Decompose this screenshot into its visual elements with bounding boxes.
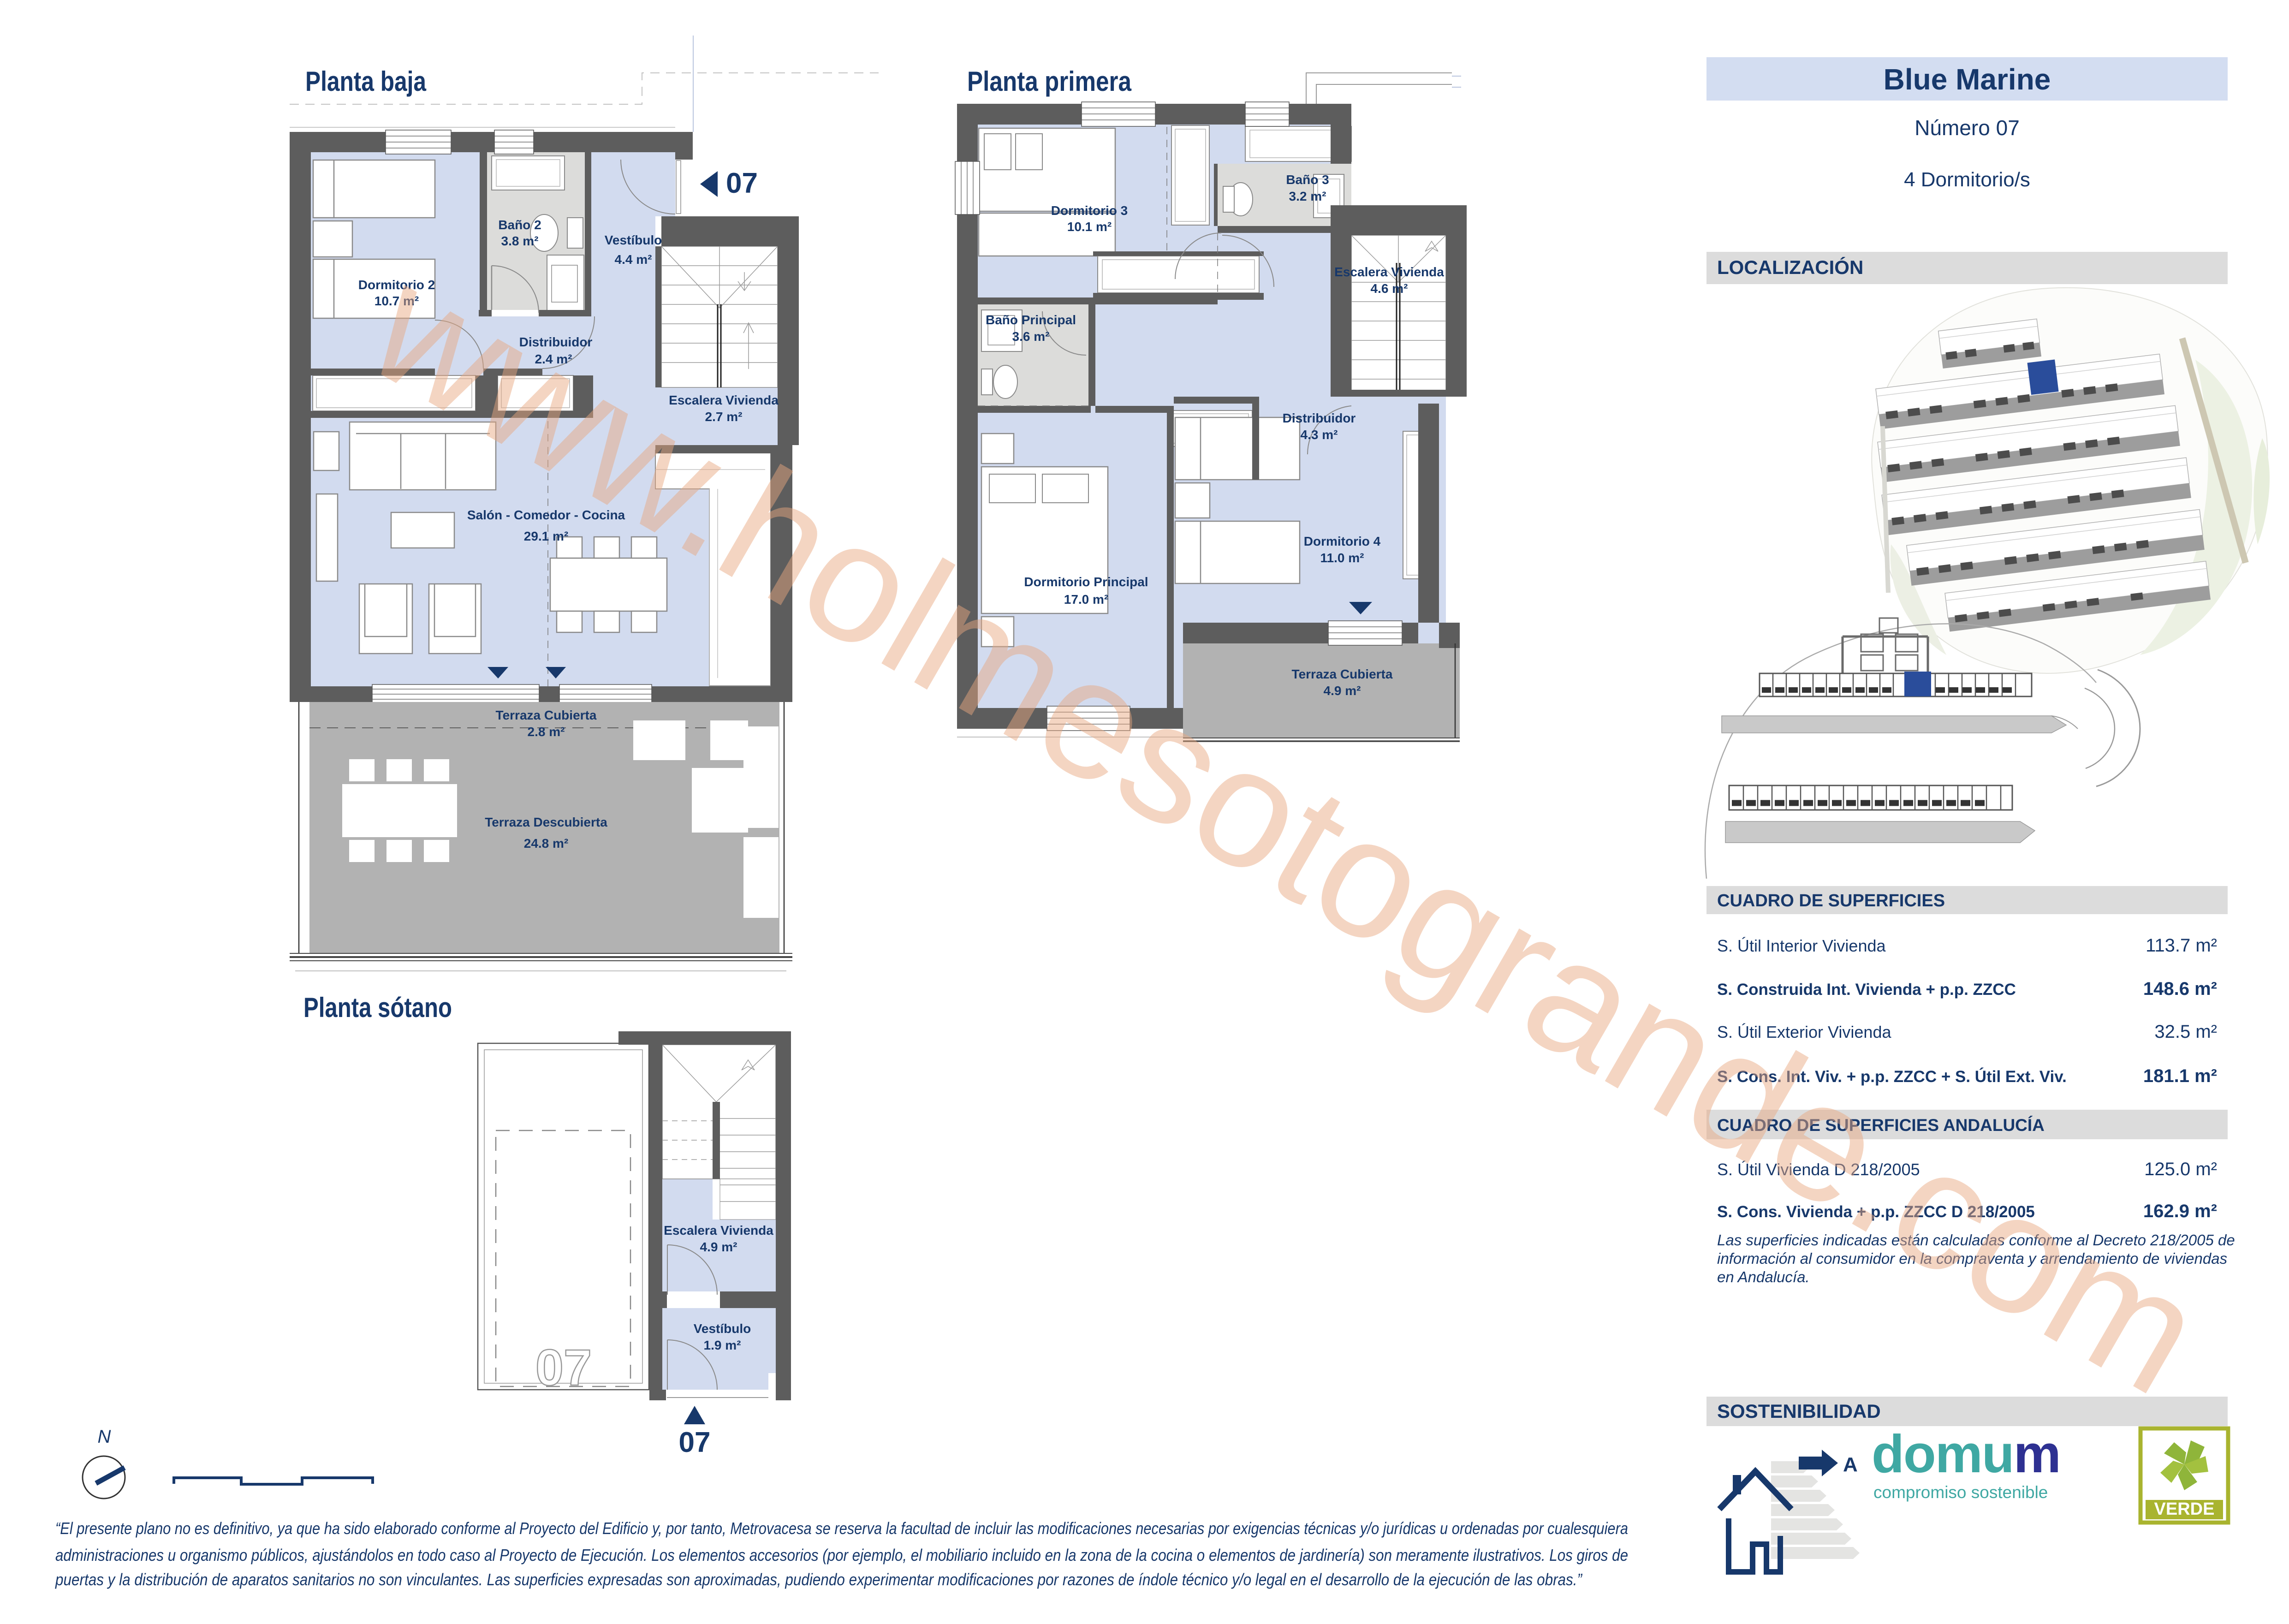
svg-text:Planta sótano: Planta sótano (303, 992, 452, 1023)
svg-text:N: N (98, 1427, 111, 1447)
svg-text:125.0 m²: 125.0 m² (2144, 1159, 2217, 1179)
svg-text:11.0 m²: 11.0 m² (1320, 551, 1364, 565)
svg-text:4.9 m²: 4.9 m² (1324, 684, 1361, 698)
svg-text:en Andalucía.: en Andalucía. (1717, 1268, 1810, 1285)
svg-text:24.8 m²: 24.8 m² (524, 836, 569, 851)
svg-text:“El presente plano no es defin: “El presente plano no es definitivo, ya … (55, 1519, 1628, 1538)
svg-text:Escalera Vivienda: Escalera Vivienda (1334, 265, 1444, 279)
svg-text:10.1 m²: 10.1 m² (1067, 220, 1112, 234)
svg-text:A: A (1843, 1453, 1858, 1476)
svg-text:S. Útil Interior Vivienda: S. Útil Interior Vivienda (1717, 936, 1886, 955)
svg-text:181.1 m²: 181.1 m² (2143, 1066, 2217, 1086)
svg-text:LOCALIZACIÓN: LOCALIZACIÓN (1717, 256, 1863, 278)
svg-text:CUADRO DE SUPERFICIES: CUADRO DE SUPERFICIES (1717, 891, 1945, 910)
svg-text:Escalera Vivienda: Escalera Vivienda (664, 1223, 773, 1237)
svg-text:Distribuidor: Distribuidor (1283, 411, 1356, 425)
svg-text:SOSTENIBILIDAD: SOSTENIBILIDAD (1717, 1400, 1881, 1422)
svg-text:VERDE: VERDE (2154, 1499, 2215, 1519)
svg-text:3.8 m²: 3.8 m² (501, 234, 539, 248)
svg-text:Baño 2: Baño 2 (498, 218, 541, 232)
svg-text:07: 07 (535, 1339, 592, 1396)
svg-text:Planta primera: Planta primera (967, 66, 1132, 97)
svg-text:4.3 m²: 4.3 m² (1301, 428, 1338, 442)
svg-text:puertas y la distribución de a: puertas y la distribución de aparatos sa… (55, 1570, 1583, 1589)
svg-text:Vestíbulo: Vestíbulo (605, 233, 662, 247)
svg-text:Blue Marine: Blue Marine (1884, 63, 2051, 96)
svg-text:1.9 m²: 1.9 m² (704, 1338, 741, 1352)
svg-text:domum: domum (1872, 1424, 2060, 1484)
svg-text:2.8 m²: 2.8 m² (528, 725, 565, 739)
svg-text:3.6 m²: 3.6 m² (1012, 329, 1050, 344)
svg-text:4 Dormitorio/s: 4 Dormitorio/s (1904, 168, 2030, 191)
svg-text:Vestíbulo: Vestíbulo (694, 1321, 751, 1336)
svg-text:administraciones u organismo p: administraciones u organismo públicos, a… (55, 1546, 1628, 1565)
svg-text:Dormitorio 3: Dormitorio 3 (1051, 203, 1128, 218)
svg-text:Baño Principal: Baño Principal (986, 313, 1076, 327)
svg-text:3.2 m²: 3.2 m² (1289, 189, 1326, 203)
svg-text:4.6 m²: 4.6 m² (1371, 281, 1408, 296)
svg-text:07: 07 (679, 1427, 711, 1458)
svg-text:Terraza Cubierta: Terraza Cubierta (1292, 667, 1393, 681)
svg-text:07: 07 (726, 167, 758, 199)
svg-text:148.6 m²: 148.6 m² (2143, 979, 2217, 999)
svg-text:Planta baja: Planta baja (305, 66, 427, 97)
svg-text:4.9 m²: 4.9 m² (700, 1240, 737, 1254)
svg-text:Terraza Cubierta: Terraza Cubierta (496, 708, 597, 722)
svg-text:compromiso sostenible: compromiso sostenible (1873, 1483, 2048, 1502)
svg-text:113.7 m²: 113.7 m² (2146, 935, 2217, 956)
svg-text:4.4 m²: 4.4 m² (615, 252, 652, 267)
svg-text:29.1 m²: 29.1 m² (524, 529, 569, 543)
svg-text:162.9 m²: 162.9 m² (2143, 1201, 2217, 1221)
svg-text:32.5 m²: 32.5 m² (2154, 1022, 2217, 1042)
svg-text:Baño 3: Baño 3 (1286, 173, 1329, 187)
svg-text:Número 07: Número 07 (1914, 116, 2020, 140)
svg-text:Terraza Descubierta: Terraza Descubierta (485, 815, 607, 829)
svg-text:Dormitorio 4: Dormitorio 4 (1304, 534, 1381, 548)
